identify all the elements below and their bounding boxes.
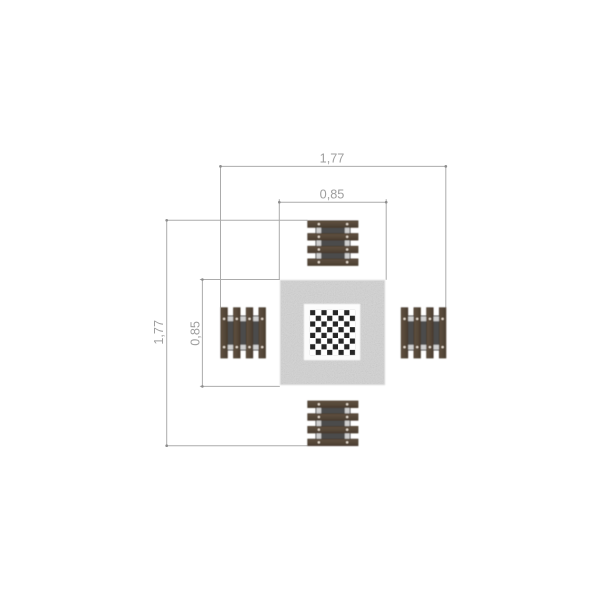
svg-text:0,85: 0,85	[189, 321, 203, 346]
svg-text:1,77: 1,77	[152, 320, 166, 345]
svg-text:1,77: 1,77	[320, 151, 345, 165]
svg-text:0,85: 0,85	[320, 188, 345, 202]
